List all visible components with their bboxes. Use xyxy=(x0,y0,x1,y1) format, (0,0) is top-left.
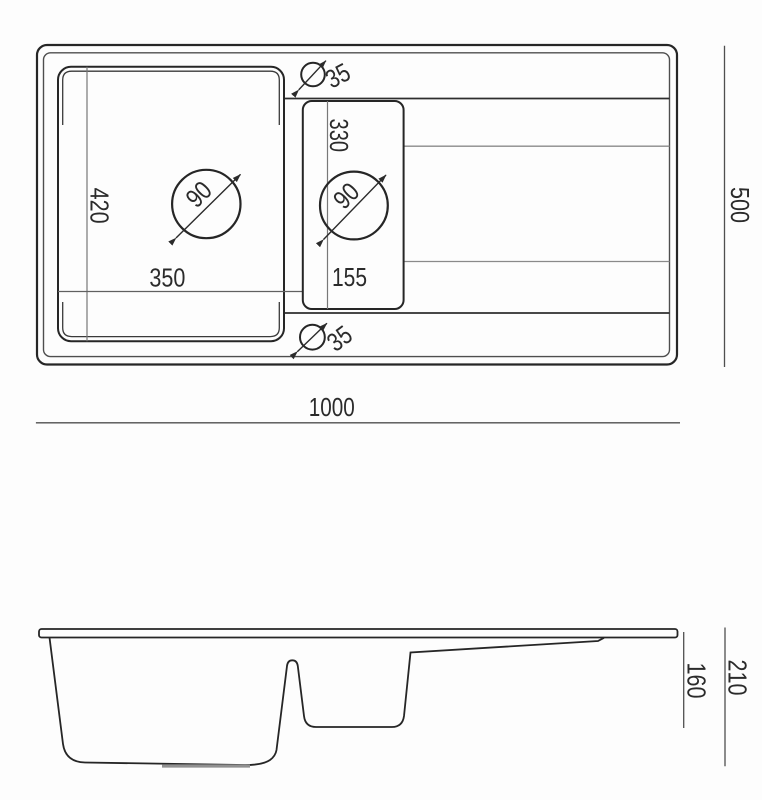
svg-text:500: 500 xyxy=(725,187,755,223)
svg-text:350: 350 xyxy=(149,263,185,293)
svg-text:210: 210 xyxy=(723,660,753,696)
svg-text:35: 35 xyxy=(320,57,355,95)
svg-text:155: 155 xyxy=(332,262,367,292)
svg-text:35: 35 xyxy=(321,319,358,357)
svg-text:330: 330 xyxy=(324,119,354,153)
svg-text:160: 160 xyxy=(682,663,712,699)
svg-text:1000: 1000 xyxy=(309,392,355,422)
svg-text:420: 420 xyxy=(85,188,115,224)
